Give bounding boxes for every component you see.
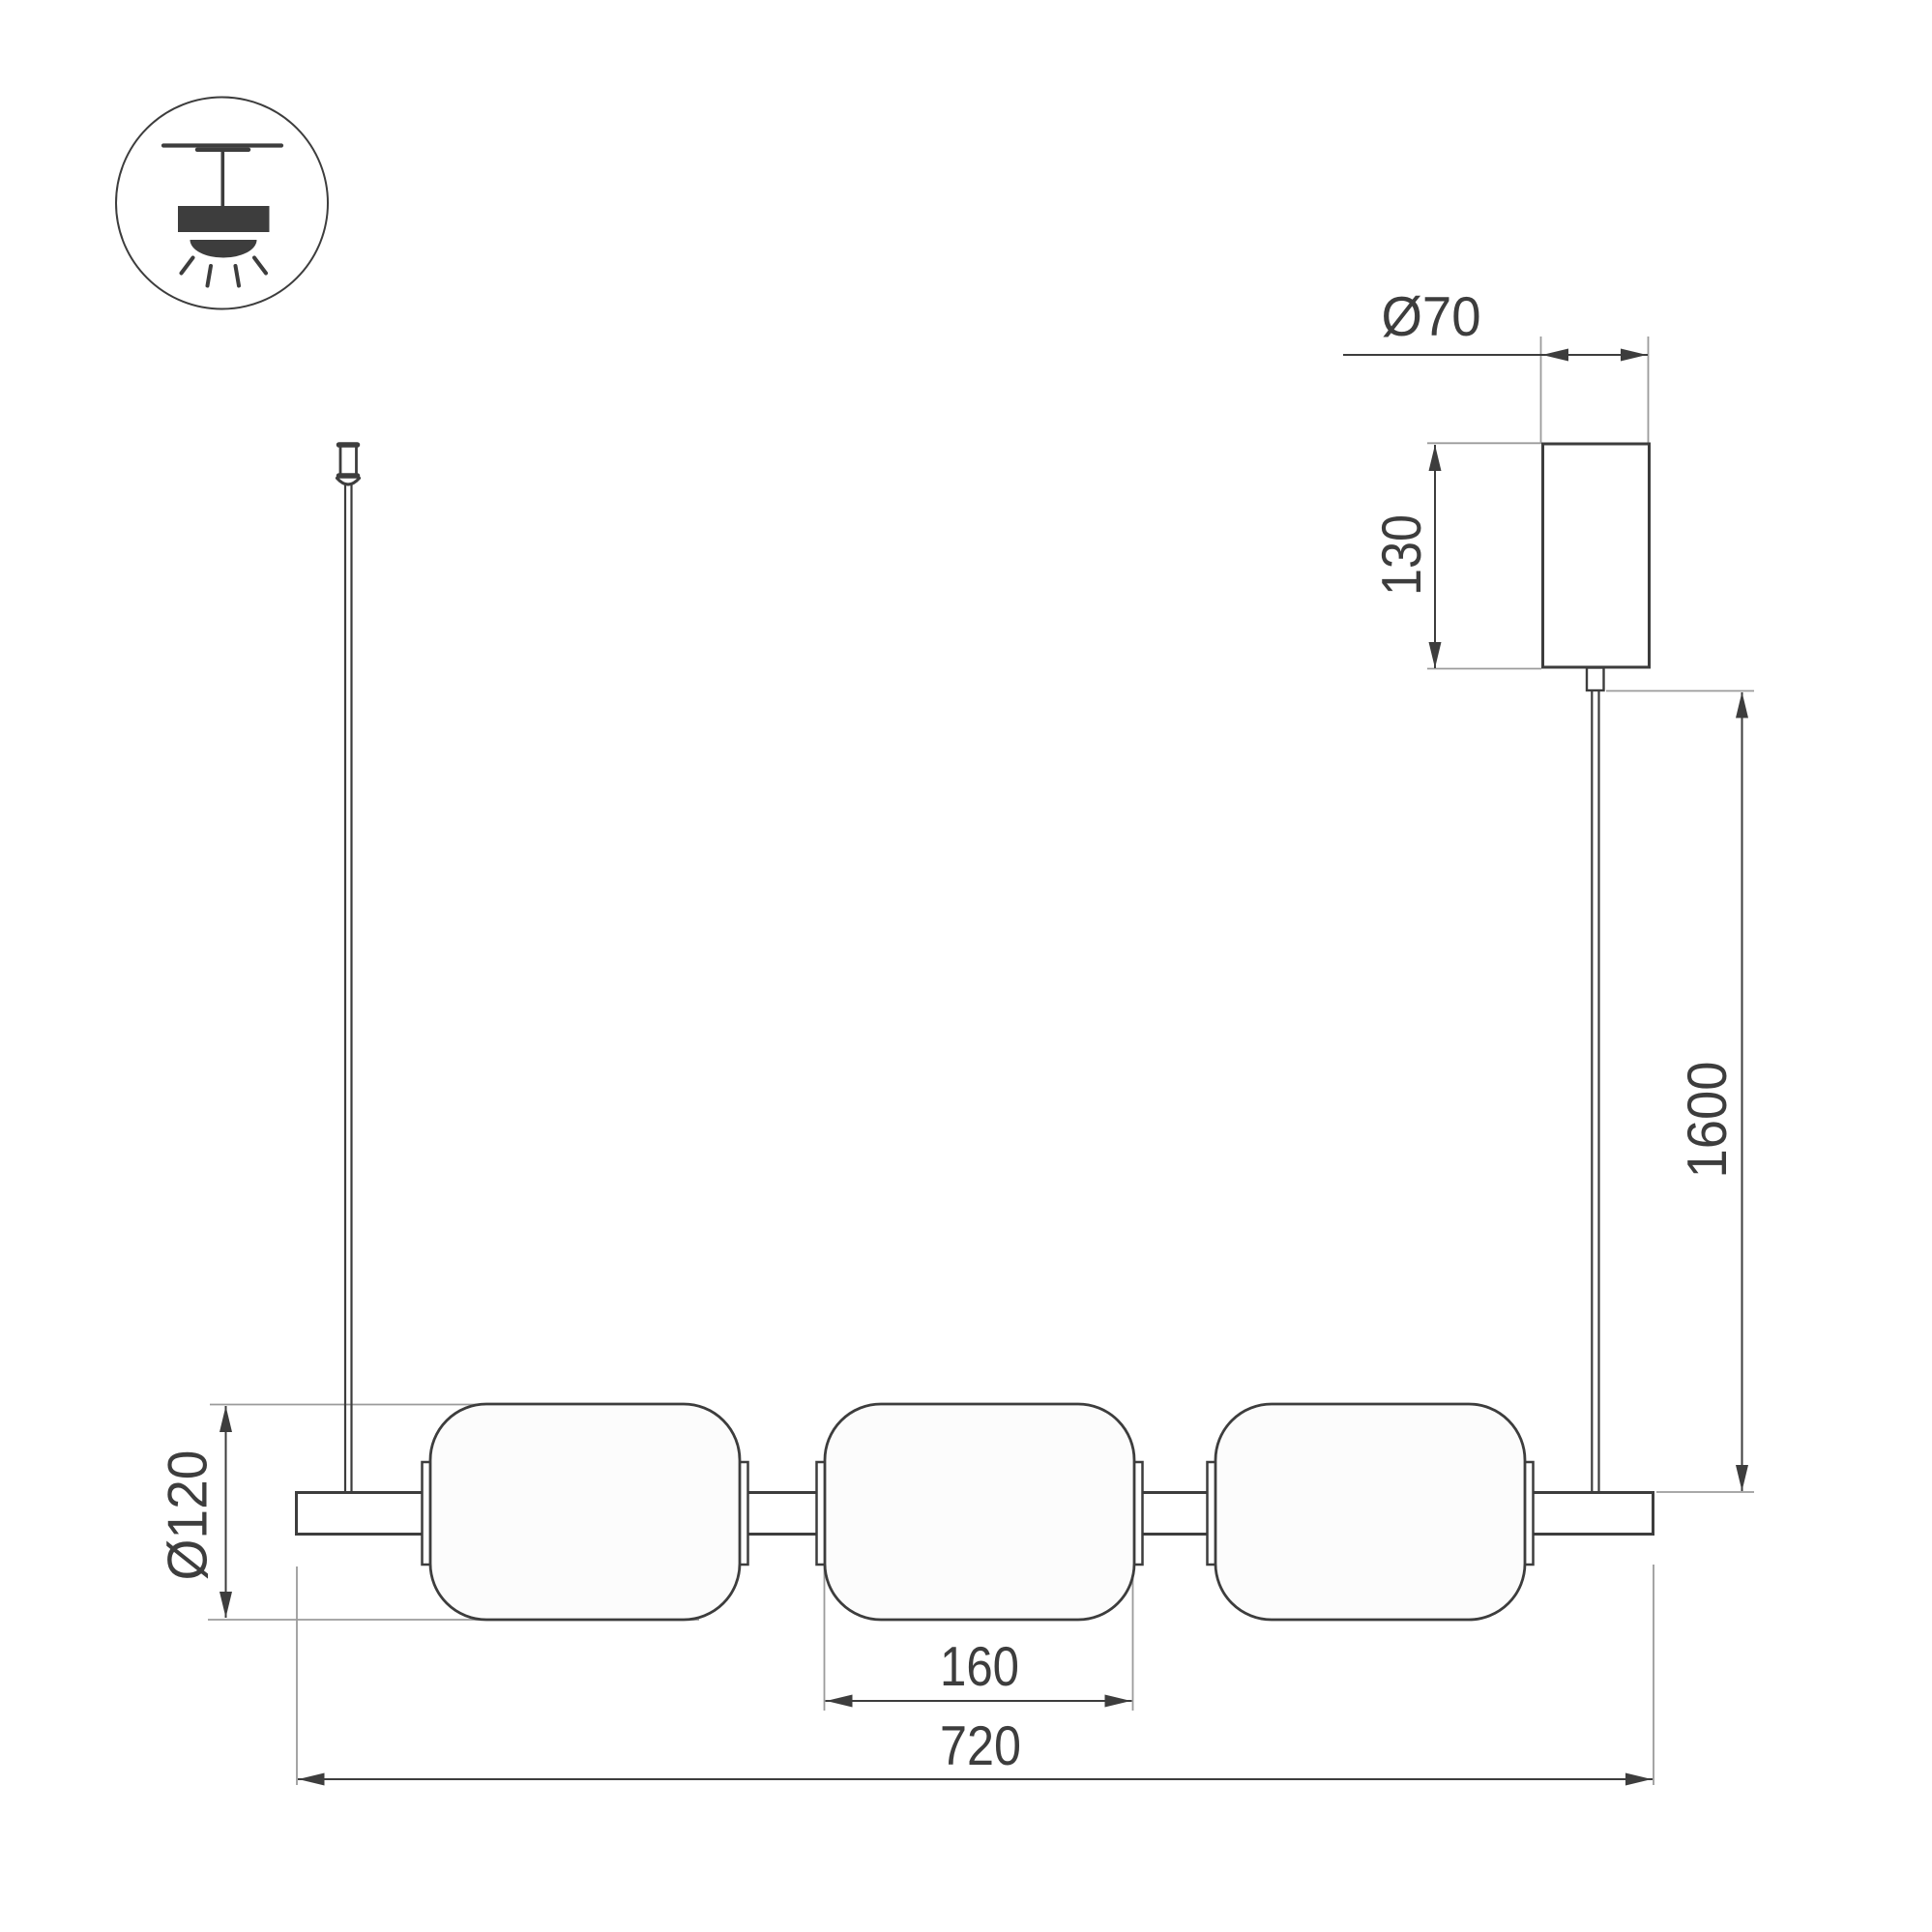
svg-text:160: 160 — [940, 1636, 1019, 1698]
svg-text:Ø70: Ø70 — [1382, 286, 1481, 348]
svg-text:1600: 1600 — [1677, 1062, 1739, 1179]
svg-text:130: 130 — [1371, 514, 1433, 596]
svg-text:Ø120: Ø120 — [158, 1450, 220, 1581]
svg-text:720: 720 — [940, 1715, 1021, 1777]
